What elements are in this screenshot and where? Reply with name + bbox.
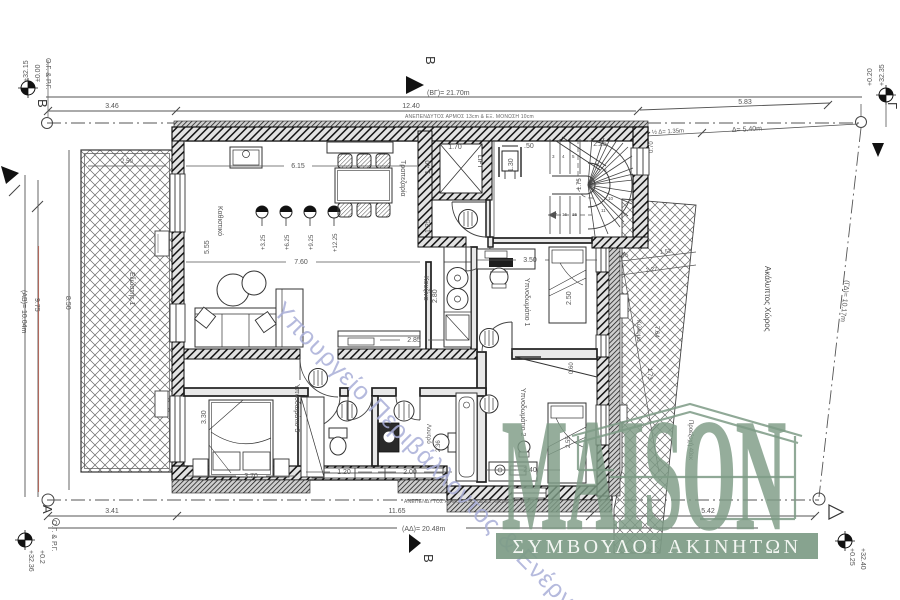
svg-text:(ΒΓ)= 21.70m: (ΒΓ)= 21.70m (427, 90, 470, 97)
svg-text:16: 16 (562, 212, 568, 217)
svg-text:1.30: 1.30 (508, 158, 515, 172)
svg-text:+6.25: +6.25 (285, 234, 291, 250)
svg-text:Υπνοδωμάτιο 1: Υπνοδωμάτιο 1 (523, 278, 531, 326)
svg-text:1.70: 1.70 (448, 144, 462, 151)
svg-text:1.20: 1.20 (337, 469, 351, 476)
svg-text:8.50: 8.50 (64, 296, 71, 310)
svg-text:+3.25: +3.25 (261, 234, 267, 250)
svg-text:2.25: 2.25 (593, 141, 607, 148)
svg-text:0.60: 0.60 (569, 362, 575, 374)
svg-text:11: 11 (601, 208, 606, 213)
svg-text:6.15: 6.15 (291, 163, 305, 170)
svg-text:±0.00: ±0.00 (35, 64, 42, 82)
svg-text:(ΑΔ)= 20.48m: (ΑΔ)= 20.48m (402, 526, 446, 533)
svg-text:+32.40: +32.40 (859, 548, 866, 570)
svg-text:+9.25: +9.25 (309, 234, 315, 250)
svg-text:Ο.Γ. & Ρ.Γ.: Ο.Γ. & Ρ.Γ. (50, 520, 57, 552)
svg-text:3.41: 3.41 (105, 508, 119, 515)
svg-text:9.75: 9.75 (33, 298, 40, 312)
svg-text:3.70: 3.70 (244, 473, 258, 480)
svg-text:Α: Α (40, 505, 55, 514)
svg-text:Γ: Γ (885, 102, 900, 109)
svg-text:Ο.Γ. & Ρ.Γ.: Ο.Γ. & Ρ.Γ. (44, 58, 51, 90)
svg-text:5.55: 5.55 (204, 240, 211, 254)
svg-text:2.27: 2.27 (646, 267, 659, 274)
svg-text:ΣΥΜΒΟΥΛΟΙ ΑΚΙΝΗΤΩΝ: ΣΥΜΒΟΥΛΟΙ ΑΚΙΝΗΤΩΝ (512, 536, 801, 558)
svg-text:11.65: 11.65 (389, 508, 406, 515)
svg-text:Β: Β (421, 554, 436, 563)
svg-text:17: 17 (552, 212, 558, 217)
svg-text:1.75: 1.75 (577, 178, 583, 190)
svg-text:Καθιστικό: Καθιστικό (216, 206, 224, 236)
svg-text:+32.35: +32.35 (879, 64, 886, 86)
svg-text:Κουζίνα: Κουζίνα (422, 276, 430, 301)
svg-text:Ακάλυπτος Χώρος: Ακάλυπτος Χώρος (763, 266, 772, 332)
svg-text:+12.25: +12.25 (333, 233, 339, 252)
svg-text:2.80: 2.80 (432, 289, 439, 303)
svg-text:5.83: 5.83 (738, 99, 752, 106)
svg-text:Τραπεζαρία: Τραπεζαρία (399, 160, 407, 197)
svg-text:+0.20: +0.20 (867, 68, 874, 86)
svg-text:2.85: 2.85 (407, 337, 421, 344)
svg-text:ΑΝΕΠΕΝΔΥΤΟΣ ΑΡΜΟΣ 13cm & ΕΞ. Μ: ΑΝΕΠΕΝΔΥΤΟΣ ΑΡΜΟΣ 13cm & ΕΞ. ΜΟΝΩΣΗ 10cm (405, 114, 534, 120)
svg-text:+32.36: +32.36 (27, 550, 34, 572)
svg-text:3.46: 3.46 (105, 103, 119, 110)
svg-text:Υπνοδωμάτιο 3: Υπνοδωμάτιο 3 (293, 384, 301, 432)
svg-text:.50: .50 (524, 143, 534, 150)
svg-text:3.50: 3.50 (523, 257, 537, 264)
svg-text:+32.15: +32.15 (23, 60, 30, 82)
svg-text:10: 10 (608, 196, 614, 201)
svg-text:+0.25: +0.25 (848, 548, 855, 566)
svg-text:2.00: 2.00 (403, 469, 417, 476)
svg-text:Β: Β (423, 56, 438, 65)
svg-text:7.64: 7.64 (653, 326, 659, 338)
svg-text:12.40: 12.40 (402, 103, 420, 110)
svg-text:15: 15 (572, 212, 578, 217)
svg-text:0.70: 0.70 (649, 141, 655, 153)
svg-text:7.60: 7.60 (294, 259, 308, 266)
svg-text:1.25: 1.25 (425, 219, 432, 233)
svg-text:(ΑΒ)= 10.04m: (ΑΒ)= 10.04m (20, 290, 27, 334)
svg-text:3.30: 3.30 (201, 410, 208, 424)
svg-text:1.73: 1.73 (646, 368, 652, 380)
svg-text:LIFT: LIFT (476, 155, 483, 168)
svg-text:+0.2: +0.2 (38, 550, 45, 564)
svg-text:Εξώστης 1: Εξώστης 1 (128, 272, 136, 306)
svg-text:2.50: 2.50 (121, 159, 133, 165)
svg-text:2.50: 2.50 (566, 291, 573, 305)
svg-text:1.40: 1.40 (425, 160, 432, 174)
svg-text:1.52: 1.52 (660, 249, 673, 256)
